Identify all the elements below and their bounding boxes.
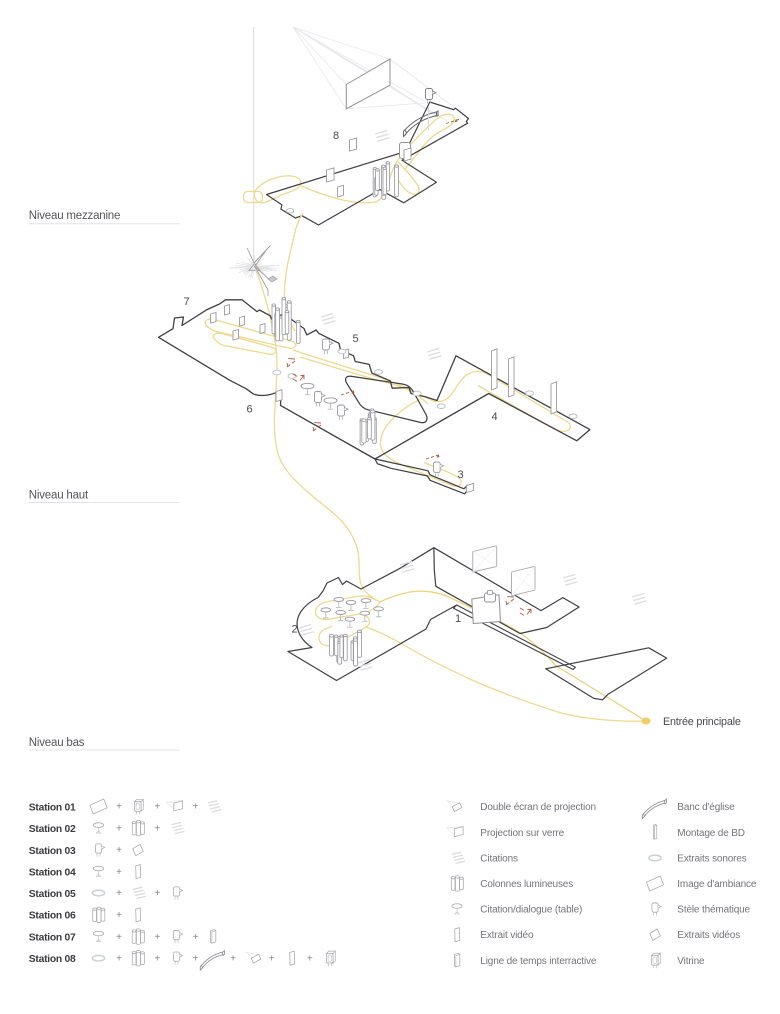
- svg-text:4: 4: [492, 411, 498, 423]
- svg-text:Extraits vidéos: Extraits vidéos: [677, 930, 740, 941]
- svg-text:Montage de BD: Montage de BD: [677, 828, 745, 839]
- svg-text:Station 04: Station 04: [29, 867, 76, 878]
- svg-text:+: +: [116, 932, 122, 943]
- svg-text:Station 03: Station 03: [29, 846, 76, 857]
- svg-text:Niveau mezzanine: Niveau mezzanine: [29, 210, 120, 222]
- svg-text:+: +: [307, 953, 313, 964]
- svg-text:Extraits sonores: Extraits sonores: [677, 853, 746, 864]
- svg-text:Projection sur verre: Projection sur verre: [480, 828, 564, 839]
- svg-text:Citation/dialogue (table): Citation/dialogue (table): [480, 905, 582, 916]
- svg-text:+: +: [116, 823, 122, 834]
- svg-text:Stèle thématique: Stèle thématique: [677, 905, 750, 916]
- svg-text:Banc d'église: Banc d'église: [677, 802, 735, 813]
- svg-text:Image d'ambiance: Image d'ambiance: [677, 879, 757, 890]
- svg-text:Station 01: Station 01: [29, 802, 76, 813]
- svg-text:+: +: [116, 802, 122, 813]
- svg-text:Ligne de temps interractive: Ligne de temps interractive: [480, 956, 597, 967]
- svg-text:+: +: [154, 802, 160, 813]
- svg-text:+: +: [193, 932, 199, 943]
- svg-text:+: +: [154, 953, 160, 964]
- svg-text:+: +: [116, 888, 122, 899]
- svg-text:Station 08: Station 08: [29, 954, 76, 965]
- svg-text:Station 07: Station 07: [29, 932, 76, 943]
- svg-text:+: +: [230, 953, 236, 964]
- svg-text:Extrait vidéo: Extrait vidéo: [480, 930, 534, 941]
- svg-text:+: +: [154, 888, 160, 899]
- svg-text:+: +: [116, 845, 122, 856]
- svg-text:6: 6: [247, 404, 253, 416]
- svg-text:+: +: [154, 932, 160, 943]
- svg-text:+: +: [154, 823, 160, 834]
- svg-text:8: 8: [333, 130, 339, 142]
- svg-text:Station 05: Station 05: [29, 889, 76, 900]
- svg-text:+: +: [116, 910, 122, 921]
- svg-text:+: +: [193, 802, 199, 813]
- svg-text:Citations: Citations: [480, 853, 518, 864]
- svg-text:+: +: [116, 867, 122, 878]
- svg-text:2: 2: [292, 624, 298, 636]
- svg-text:Vitrine: Vitrine: [677, 956, 705, 967]
- svg-text:+: +: [116, 953, 122, 964]
- svg-text:5: 5: [353, 333, 359, 345]
- svg-text:Niveau bas: Niveau bas: [29, 737, 85, 749]
- svg-text:Station 06: Station 06: [29, 911, 76, 922]
- svg-text:Station 02: Station 02: [29, 824, 76, 835]
- svg-text:7: 7: [184, 296, 190, 308]
- svg-text:Colonnes lumineuses: Colonnes lumineuses: [480, 879, 573, 890]
- svg-text:+: +: [269, 953, 275, 964]
- svg-text:3: 3: [458, 469, 464, 481]
- svg-text:Niveau haut: Niveau haut: [29, 490, 89, 502]
- svg-text:Double écran de projection: Double écran de projection: [480, 802, 596, 813]
- svg-text:1: 1: [455, 613, 461, 625]
- svg-text:Entrée principale: Entrée principale: [663, 716, 741, 728]
- svg-text:+: +: [193, 953, 199, 964]
